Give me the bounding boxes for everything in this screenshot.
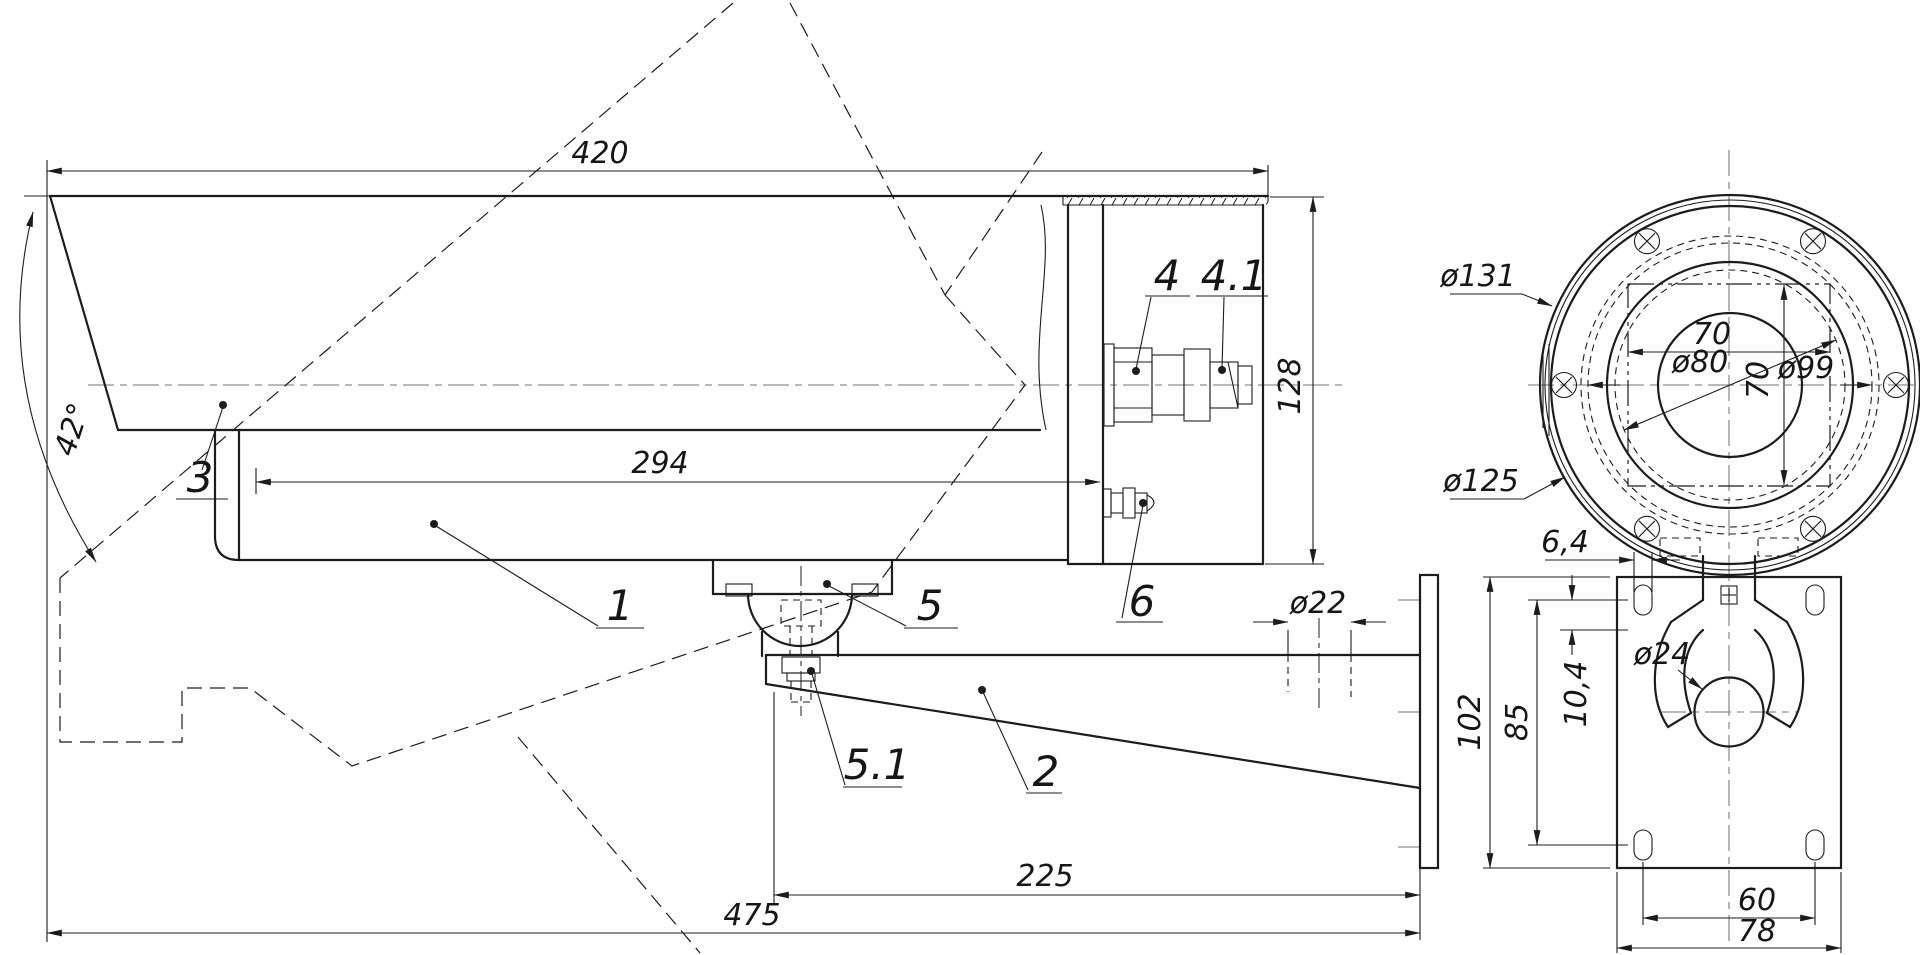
front-bezel (215, 430, 239, 560)
mount-slot (1634, 830, 1652, 860)
dim-o131: ø131 (1439, 259, 1516, 294)
leader-dot-5-1 (807, 667, 815, 675)
leader-o24 (1678, 670, 1702, 689)
drawing-canvas: 420 294 128 ø22 225 475 42° 3 1 5 (0, 0, 1920, 955)
dim-78: 78 (1738, 914, 1776, 949)
shield-front-slant (50, 196, 118, 430)
dim-420: 420 (571, 136, 628, 171)
mount-slot (1634, 585, 1652, 615)
dim-o22: ø22 (1289, 586, 1347, 621)
dim-42-arc (20, 212, 96, 562)
dim-225: 225 (1016, 859, 1073, 894)
part-label-5-1: 5.1 (844, 740, 911, 789)
leader-5 (829, 586, 906, 626)
dim-42deg: 42° (48, 399, 98, 460)
drawing-sheet: 420 294 128 ø22 225 475 42° 3 1 5 (0, 0, 1920, 955)
side-view-housing (50, 196, 1268, 564)
dim-70-height: 70 (1741, 361, 1776, 399)
ball-joint-assembly (713, 560, 892, 716)
dim-102: 102 (1453, 693, 1488, 750)
wall-plate-side (1420, 575, 1438, 868)
dim-85: 85 (1500, 703, 1535, 741)
part-label-6: 6 (1129, 577, 1156, 626)
part-label-4: 4 (1154, 251, 1181, 300)
part-label-5: 5 (917, 581, 944, 630)
dim-6-4: 6,4 (1541, 525, 1589, 560)
shield-hatch-band (1063, 197, 1268, 205)
leader-dot-2 (978, 686, 986, 694)
centerlines (88, 150, 1918, 945)
mount-slot (1806, 585, 1824, 615)
leader-4 (1136, 297, 1151, 369)
part-label-3: 3 (187, 453, 214, 502)
part-label-4-1: 4.1 (1201, 251, 1268, 300)
dim-o99: ø99 (1777, 351, 1835, 386)
break-line (1039, 205, 1046, 430)
leader-o131 (1522, 294, 1552, 306)
leader-5-1 (812, 674, 845, 785)
dim-o24: ø24 (1633, 637, 1691, 672)
dim-294: 294 (631, 446, 688, 481)
gland-nut (1123, 488, 1135, 518)
leader-1 (436, 526, 598, 626)
dim-10-4: 10,4 (1559, 661, 1594, 728)
dim-128: 128 (1273, 357, 1308, 414)
gland-neck (1111, 493, 1123, 513)
front-view-camera-dimensions: 70 70 ø80 ø99 ø131 ø125 (1439, 259, 1872, 499)
part-label-2: 2 (1033, 747, 1060, 796)
dim-60: 60 (1738, 883, 1776, 918)
leader-4-1 (1222, 297, 1224, 368)
dim-o125: ø125 (1442, 464, 1519, 499)
ball (748, 594, 852, 646)
leader-2 (983, 692, 1028, 790)
dim-475: 475 (723, 898, 780, 933)
front-view-bracket-dimensions: 102 85 10,4 6,4 ø24 60 78 (1453, 525, 1841, 953)
part-label-1: 1 (607, 581, 634, 630)
mount-slot (1806, 830, 1824, 860)
gland-tip (1147, 495, 1154, 511)
leader-o125 (1524, 477, 1565, 499)
dim-o80: ø80 (1671, 345, 1729, 380)
part-labels: 3 1 5 5.1 2 4 4.1 6 (176, 251, 1268, 796)
gland-base (1103, 489, 1111, 517)
